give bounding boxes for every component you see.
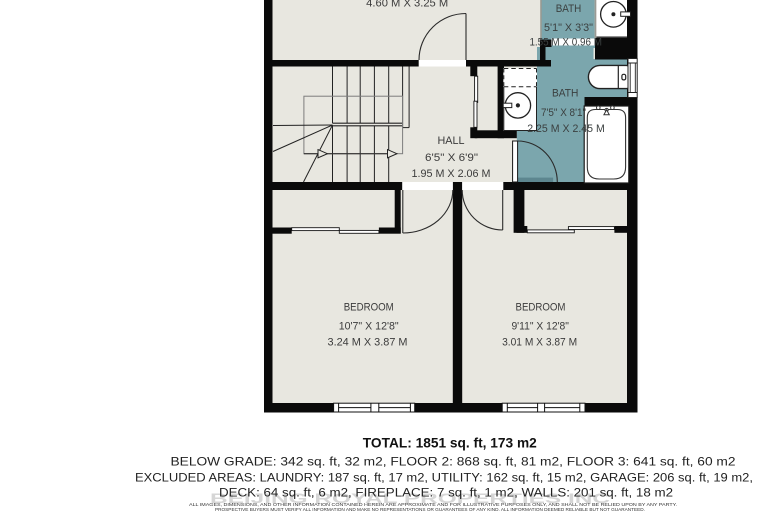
- svg-text:BELOW GRADE: 342 sq. ft, 32 m2: BELOW GRADE: 342 sq. ft, 32 m2, FLOOR 2:…: [171, 455, 736, 469]
- svg-text:6'5" X 6'9": 6'5" X 6'9": [425, 152, 478, 164]
- svg-text:BATH: BATH: [556, 3, 582, 15]
- svg-text:BEDROOM: BEDROOM: [344, 302, 394, 314]
- svg-text:HALL: HALL: [438, 135, 465, 147]
- svg-text:EXCLUDED AREAS: LAUNDRY: 187 s: EXCLUDED AREAS: LAUNDRY: 187 sq. ft, 17 …: [135, 471, 753, 485]
- svg-text:9'11" X 12'8": 9'11" X 12'8": [511, 320, 569, 332]
- svg-text:4.60 M X 3.25 M: 4.60 M X 3.25 M: [366, 0, 448, 10]
- svg-text:TOTAL: 1851 sq. ft, 173 m2: TOTAL: 1851 sq. ft, 173 m2: [363, 435, 537, 451]
- svg-text:ALL IMAGES, DIMENSIONS, AND OT: ALL IMAGES, DIMENSIONS, AND OTHER INFORM…: [189, 502, 677, 508]
- svg-text:5'1" X 3'3": 5'1" X 3'3": [544, 22, 593, 34]
- svg-text:BATH: BATH: [552, 87, 579, 99]
- svg-text:DECK: 64 sq. ft, 6 m2, FIREPLA: DECK: 64 sq. ft, 6 m2, FIREPLACE: 7 sq. …: [219, 486, 673, 500]
- svg-text:BEDROOM: BEDROOM: [516, 302, 566, 314]
- svg-text:1.95 M X 2.06 M: 1.95 M X 2.06 M: [412, 168, 491, 180]
- svg-text:10'7" X 12'8": 10'7" X 12'8": [339, 320, 399, 332]
- svg-text:PROSPECTIVE BUYERS MUST VERIFY: PROSPECTIVE BUYERS MUST VERIFY ALL INFOR…: [215, 507, 645, 511]
- svg-text:7'5" X 8'1": 7'5" X 8'1": [541, 107, 586, 119]
- svg-text:3.01 M X 3.87 M: 3.01 M X 3.87 M: [502, 336, 577, 348]
- svg-text:3.24 M X 3.87 M: 3.24 M X 3.87 M: [328, 336, 408, 348]
- svg-text:1.55 M X 0.96 M: 1.55 M X 0.96 M: [529, 37, 602, 49]
- svg-text:2.25 M X 2.45 M: 2.25 M X 2.45 M: [527, 123, 605, 135]
